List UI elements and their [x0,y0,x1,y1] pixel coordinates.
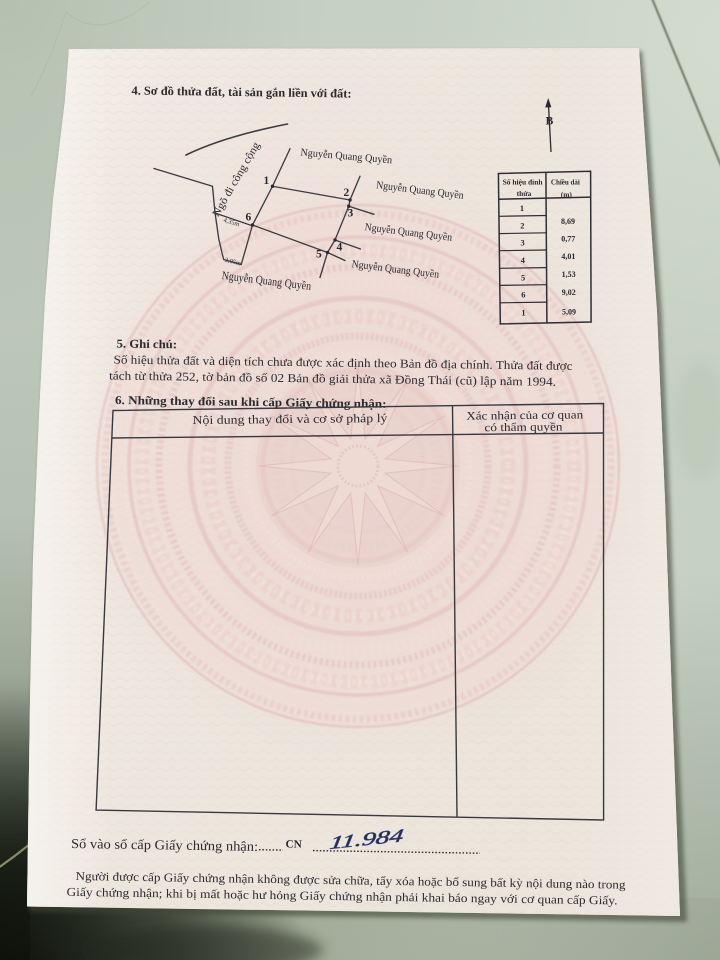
svg-text:4: 4 [337,242,343,254]
svg-text:1: 1 [264,175,270,187]
svg-text:CN: CN [285,839,301,851]
svg-text:0,77: 0,77 [561,234,575,243]
svg-text:3: 3 [348,208,354,220]
svg-text:1: 1 [521,309,525,318]
svg-text:5. Ghi chú:: 5. Ghi chú: [116,337,177,352]
svg-text:B: B [546,116,554,128]
svg-text:6: 6 [521,291,525,300]
svg-text:2: 2 [520,221,524,230]
svg-text:6: 6 [246,212,252,224]
svg-text:(m): (m) [561,190,573,199]
svg-text:thửa: thửa [517,189,532,198]
svg-text:8,69: 8,69 [561,217,575,226]
svg-text:9,02: 9,02 [562,288,576,297]
svg-text:2: 2 [344,187,350,199]
svg-text:1: 1 [520,204,524,213]
svg-text:Số hiệu đỉnh: Số hiệu đỉnh [503,178,543,187]
svg-text:5: 5 [521,273,525,282]
svg-text:5: 5 [316,249,322,261]
svg-text:Chiều dài: Chiều dài [551,178,580,187]
svg-text:5,09: 5,09 [562,308,576,317]
svg-text:4,01: 4,01 [561,252,575,261]
svg-text:Sổ vào sổ cấp Giấy chứng nhận:: Sổ vào sổ cấp Giấy chứng nhận: [71,836,258,854]
svg-text:1,53: 1,53 [562,270,576,279]
svg-text:Xác nhận của cơ quan: Xác nhận của cơ quan [466,409,583,422]
svg-text:Nội dung thay đổi và cơ sở phá: Nội dung thay đổi và cơ sở pháp lý [192,411,387,427]
svg-text:3: 3 [521,239,525,248]
svg-text:có thẩm quyền: có thẩm quyền [484,420,562,434]
